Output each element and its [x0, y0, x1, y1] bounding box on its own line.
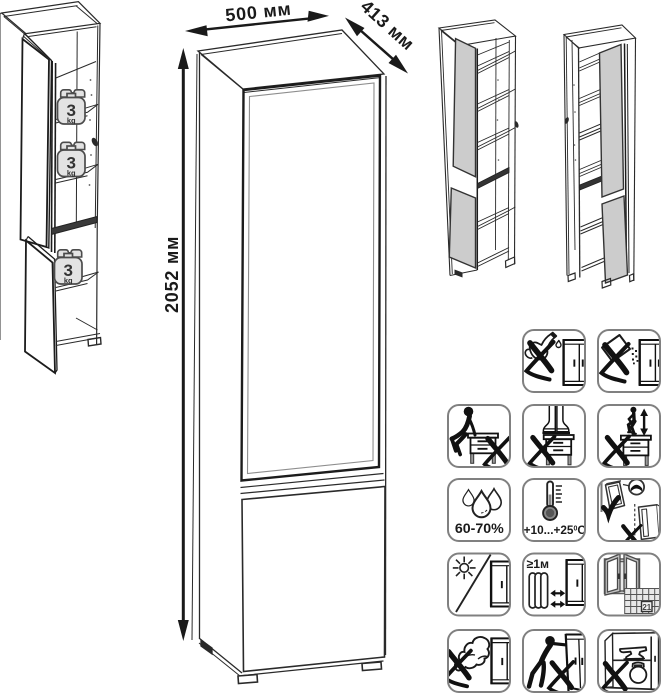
svg-text:+10...+250C: +10...+250C — [524, 523, 587, 537]
svg-text:≥1м: ≥1м — [527, 557, 549, 571]
svg-text:2052 мм: 2052 мм — [162, 236, 182, 313]
svg-text:21: 21 — [642, 603, 651, 612]
svg-text:413 мм: 413 мм — [357, 0, 418, 54]
svg-text:60-70%: 60-70% — [455, 521, 504, 537]
